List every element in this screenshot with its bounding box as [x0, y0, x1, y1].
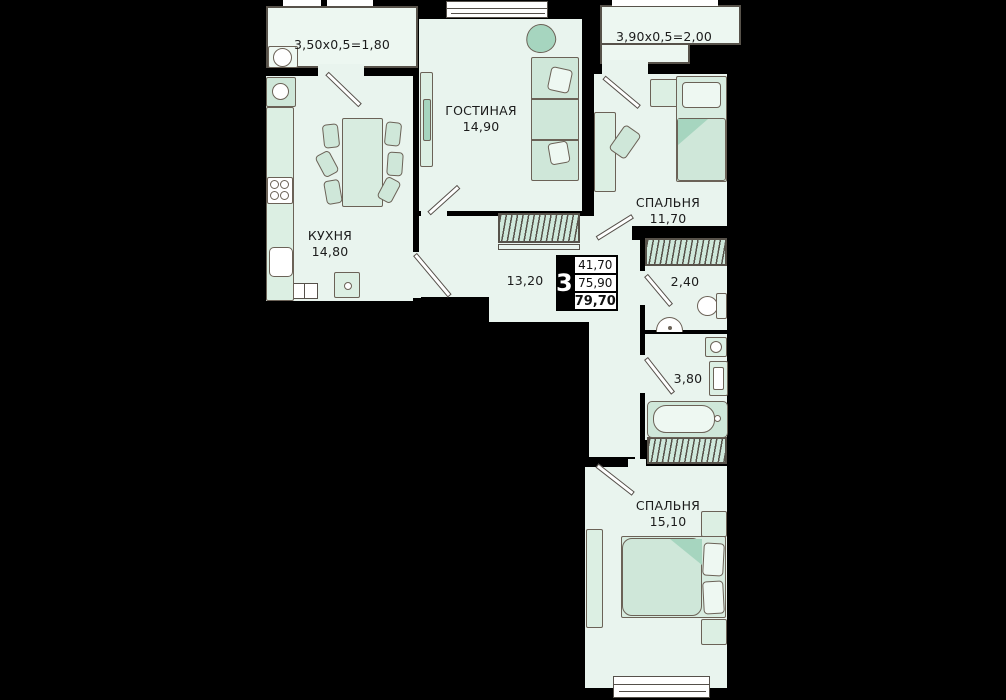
label-balcony-bedroom: 3,90x0,5=2,00 — [616, 29, 712, 45]
room-area: 11,70 — [636, 211, 700, 227]
toilet-tank — [716, 293, 727, 319]
label-bedroom-top: СПАЛЬНЯ 11,70 — [636, 195, 700, 227]
nightstand — [701, 511, 727, 537]
window-living — [446, 1, 548, 18]
room-area: 13,20 — [507, 273, 544, 289]
rooms-count: 3 — [556, 255, 573, 311]
wardrobe-hall-shelf — [498, 244, 580, 250]
opening-balcony-bedroom — [602, 60, 648, 76]
chair — [384, 121, 402, 147]
wardrobe — [586, 529, 603, 628]
label-bathroom: 3,80 — [674, 371, 703, 387]
label-living: ГОСТИНАЯ 14,90 — [445, 103, 516, 135]
bed-pillow — [682, 82, 721, 108]
room-name: КУХНЯ — [308, 228, 352, 244]
room-area: 3,80 — [674, 371, 703, 387]
bathtub — [647, 401, 728, 438]
room-name: СПАЛЬНЯ — [636, 195, 700, 211]
wardrobe-hall — [498, 213, 580, 243]
room-area: 15,10 — [636, 514, 700, 530]
wardrobe-wc — [645, 238, 727, 266]
chair — [322, 123, 340, 149]
nightstand — [701, 619, 727, 645]
room-name: СПАЛЬНЯ — [636, 498, 700, 514]
sofa-pillow — [547, 140, 571, 165]
living-area-value: 41,70 — [575, 257, 616, 273]
floor-plan: 3,50x0,5=1,80 ГОСТИНАЯ 14,90 3,90x0,5=2,… — [0, 0, 1006, 700]
washing-machine-bath — [705, 337, 727, 357]
label-bedroom-bottom: СПАЛЬНЯ 15,10 — [636, 498, 700, 530]
window-bedroom-bottom — [613, 676, 710, 698]
total-area-value: 79,70 — [575, 293, 616, 309]
balcony-parapet-tab — [327, 0, 373, 6]
bed-pillow — [702, 580, 725, 614]
kitchen-sink — [269, 247, 293, 277]
area-info-box: 3 41,70 75,90 79,70 — [556, 255, 615, 311]
room-corridor — [589, 216, 640, 467]
bed-pillow — [702, 542, 725, 576]
room-area: 14,90 — [445, 119, 516, 135]
apartment-area-value: 75,90 — [575, 275, 616, 291]
bath-sink — [709, 361, 728, 396]
balcony-parapet-tab — [612, 0, 718, 6]
opening-bedroom-bottom — [628, 459, 646, 468]
toilet-bowl — [697, 296, 718, 316]
room-area: 2,40 — [671, 274, 700, 290]
label-kitchen: КУХНЯ 14,80 — [308, 228, 352, 260]
label-wc: 2,40 — [671, 274, 700, 290]
wardrobe-bedroom-bottom — [647, 437, 727, 464]
chair — [386, 151, 404, 176]
room-area: 14,80 — [308, 244, 352, 260]
washing-machine-kitchen — [334, 272, 360, 298]
area-values: 41,70 75,90 79,70 — [573, 255, 618, 311]
nightstand — [650, 79, 678, 107]
oven — [266, 77, 296, 107]
tv — [423, 99, 431, 141]
balcony-parapet-tab — [283, 0, 321, 6]
label-balcony-kitchen: 3,50x0,5=1,80 — [294, 37, 390, 53]
room-name: ГОСТИНАЯ — [445, 103, 516, 119]
stove — [267, 177, 293, 204]
label-hall: 13,20 — [507, 273, 544, 289]
